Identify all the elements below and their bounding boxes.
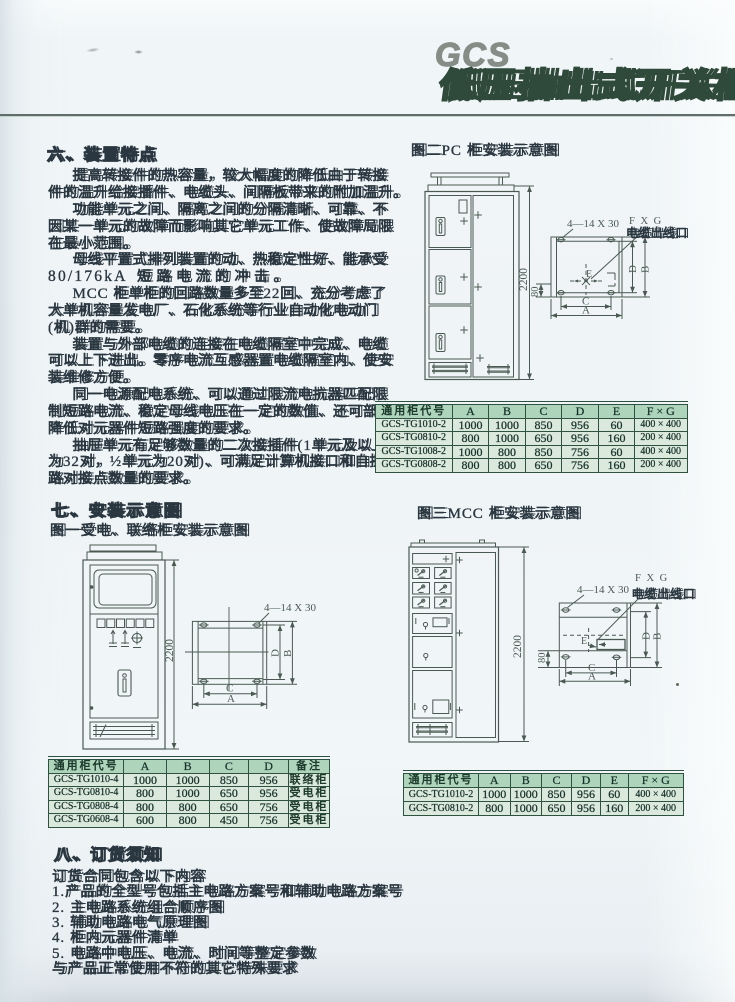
svg-text:E: E [581, 636, 587, 647]
svg-text:B: B [640, 266, 652, 273]
svg-text:2200: 2200 [518, 268, 530, 291]
svg-text:4—14 X 30: 4—14 X 30 [567, 218, 619, 230]
svg-text:B: B [652, 633, 664, 640]
svg-text:4—14 X 30: 4—14 X 30 [577, 584, 629, 596]
svg-text:2200: 2200 [512, 635, 524, 658]
svg-text:4—14 X 30: 4—14 X 30 [264, 602, 316, 614]
svg-text:A: A [582, 305, 590, 317]
svg-text:A: A [588, 671, 596, 683]
svg-text:2200: 2200 [164, 639, 176, 662]
svg-text:D: D [270, 649, 282, 657]
svg-text:D: D [627, 265, 639, 273]
svg-text:F X G: F X G [635, 573, 669, 584]
svg-text:B: B [282, 650, 294, 657]
svg-text:A: A [227, 693, 235, 705]
svg-text:80: 80 [530, 287, 541, 298]
svg-text:80: 80 [537, 653, 548, 664]
